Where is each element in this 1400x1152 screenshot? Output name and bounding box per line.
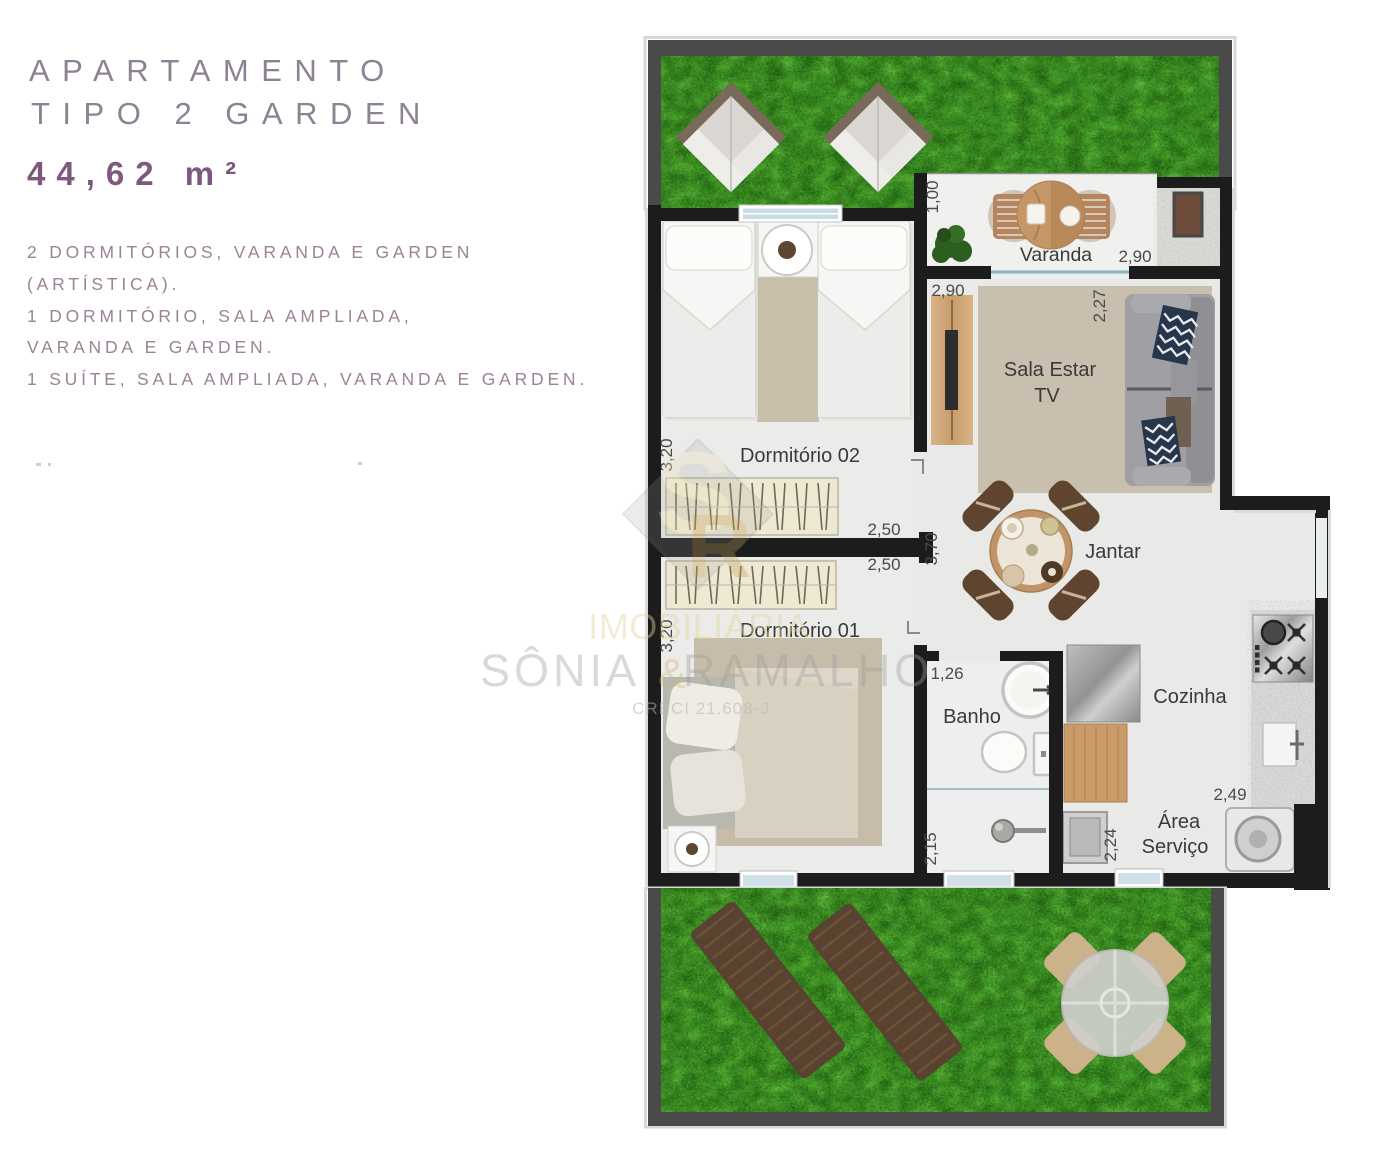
svg-text:2 DORMITÓRIOS, VARANDA E GARDE: 2 DORMITÓRIOS, VARANDA E GARDEN — [27, 241, 473, 262]
svg-text:2,49: 2,49 — [1213, 785, 1246, 804]
svg-text:TIPO 2 GARDEN: TIPO 2 GARDEN — [31, 96, 433, 131]
svg-text:SÔNIA: SÔNIA — [480, 645, 640, 696]
svg-text:2,50: 2,50 — [867, 520, 900, 539]
svg-text:Cozinha: Cozinha — [1153, 686, 1227, 708]
svg-text:2,50: 2,50 — [867, 555, 900, 574]
svg-text:R: R — [687, 497, 752, 597]
svg-text:Dormitório 02: Dormitório 02 — [740, 445, 860, 467]
svg-text:2,24: 2,24 — [1101, 828, 1120, 861]
svg-text:(ARTÍSTICA).: (ARTÍSTICA). — [27, 274, 180, 294]
svg-text:Banho: Banho — [943, 706, 1001, 728]
svg-text:VARANDA E GARDEN.: VARANDA E GARDEN. — [27, 337, 275, 357]
svg-text:RAMALHO: RAMALHO — [683, 645, 934, 696]
svg-text:1 DORMITÓRIO, SALA AMPLIADA,: 1 DORMITÓRIO, SALA AMPLIADA, — [27, 305, 413, 326]
svg-text:Jantar: Jantar — [1085, 541, 1141, 563]
svg-text:3,70: 3,70 — [922, 532, 941, 565]
svg-text:2,27: 2,27 — [1090, 289, 1109, 322]
svg-text:CRECI 21.608-J: CRECI 21.608-J — [632, 699, 770, 718]
svg-text:2,90: 2,90 — [1118, 247, 1151, 266]
svg-text:1,26: 1,26 — [930, 664, 963, 683]
svg-text:Serviço: Serviço — [1142, 836, 1209, 858]
svg-text:2,15: 2,15 — [921, 832, 940, 865]
svg-text:Sala Estar: Sala Estar — [1004, 359, 1097, 381]
svg-text:APARTAMENTO: APARTAMENTO — [29, 53, 397, 88]
svg-text:1 SUÍTE, SALA AMPLIADA, VARAND: 1 SUÍTE, SALA AMPLIADA, VARANDA E GARDEN… — [27, 369, 588, 389]
svg-text:Varanda: Varanda — [1020, 244, 1092, 266]
svg-text:IMOBILIÁRIA: IMOBILIÁRIA — [588, 606, 810, 647]
svg-text:1,00: 1,00 — [923, 180, 942, 213]
svg-text:Área: Área — [1158, 810, 1201, 833]
svg-text:44,62 m²: 44,62 m² — [27, 155, 247, 192]
svg-text:2,90: 2,90 — [931, 281, 964, 300]
svg-text:TV: TV — [1034, 385, 1060, 407]
